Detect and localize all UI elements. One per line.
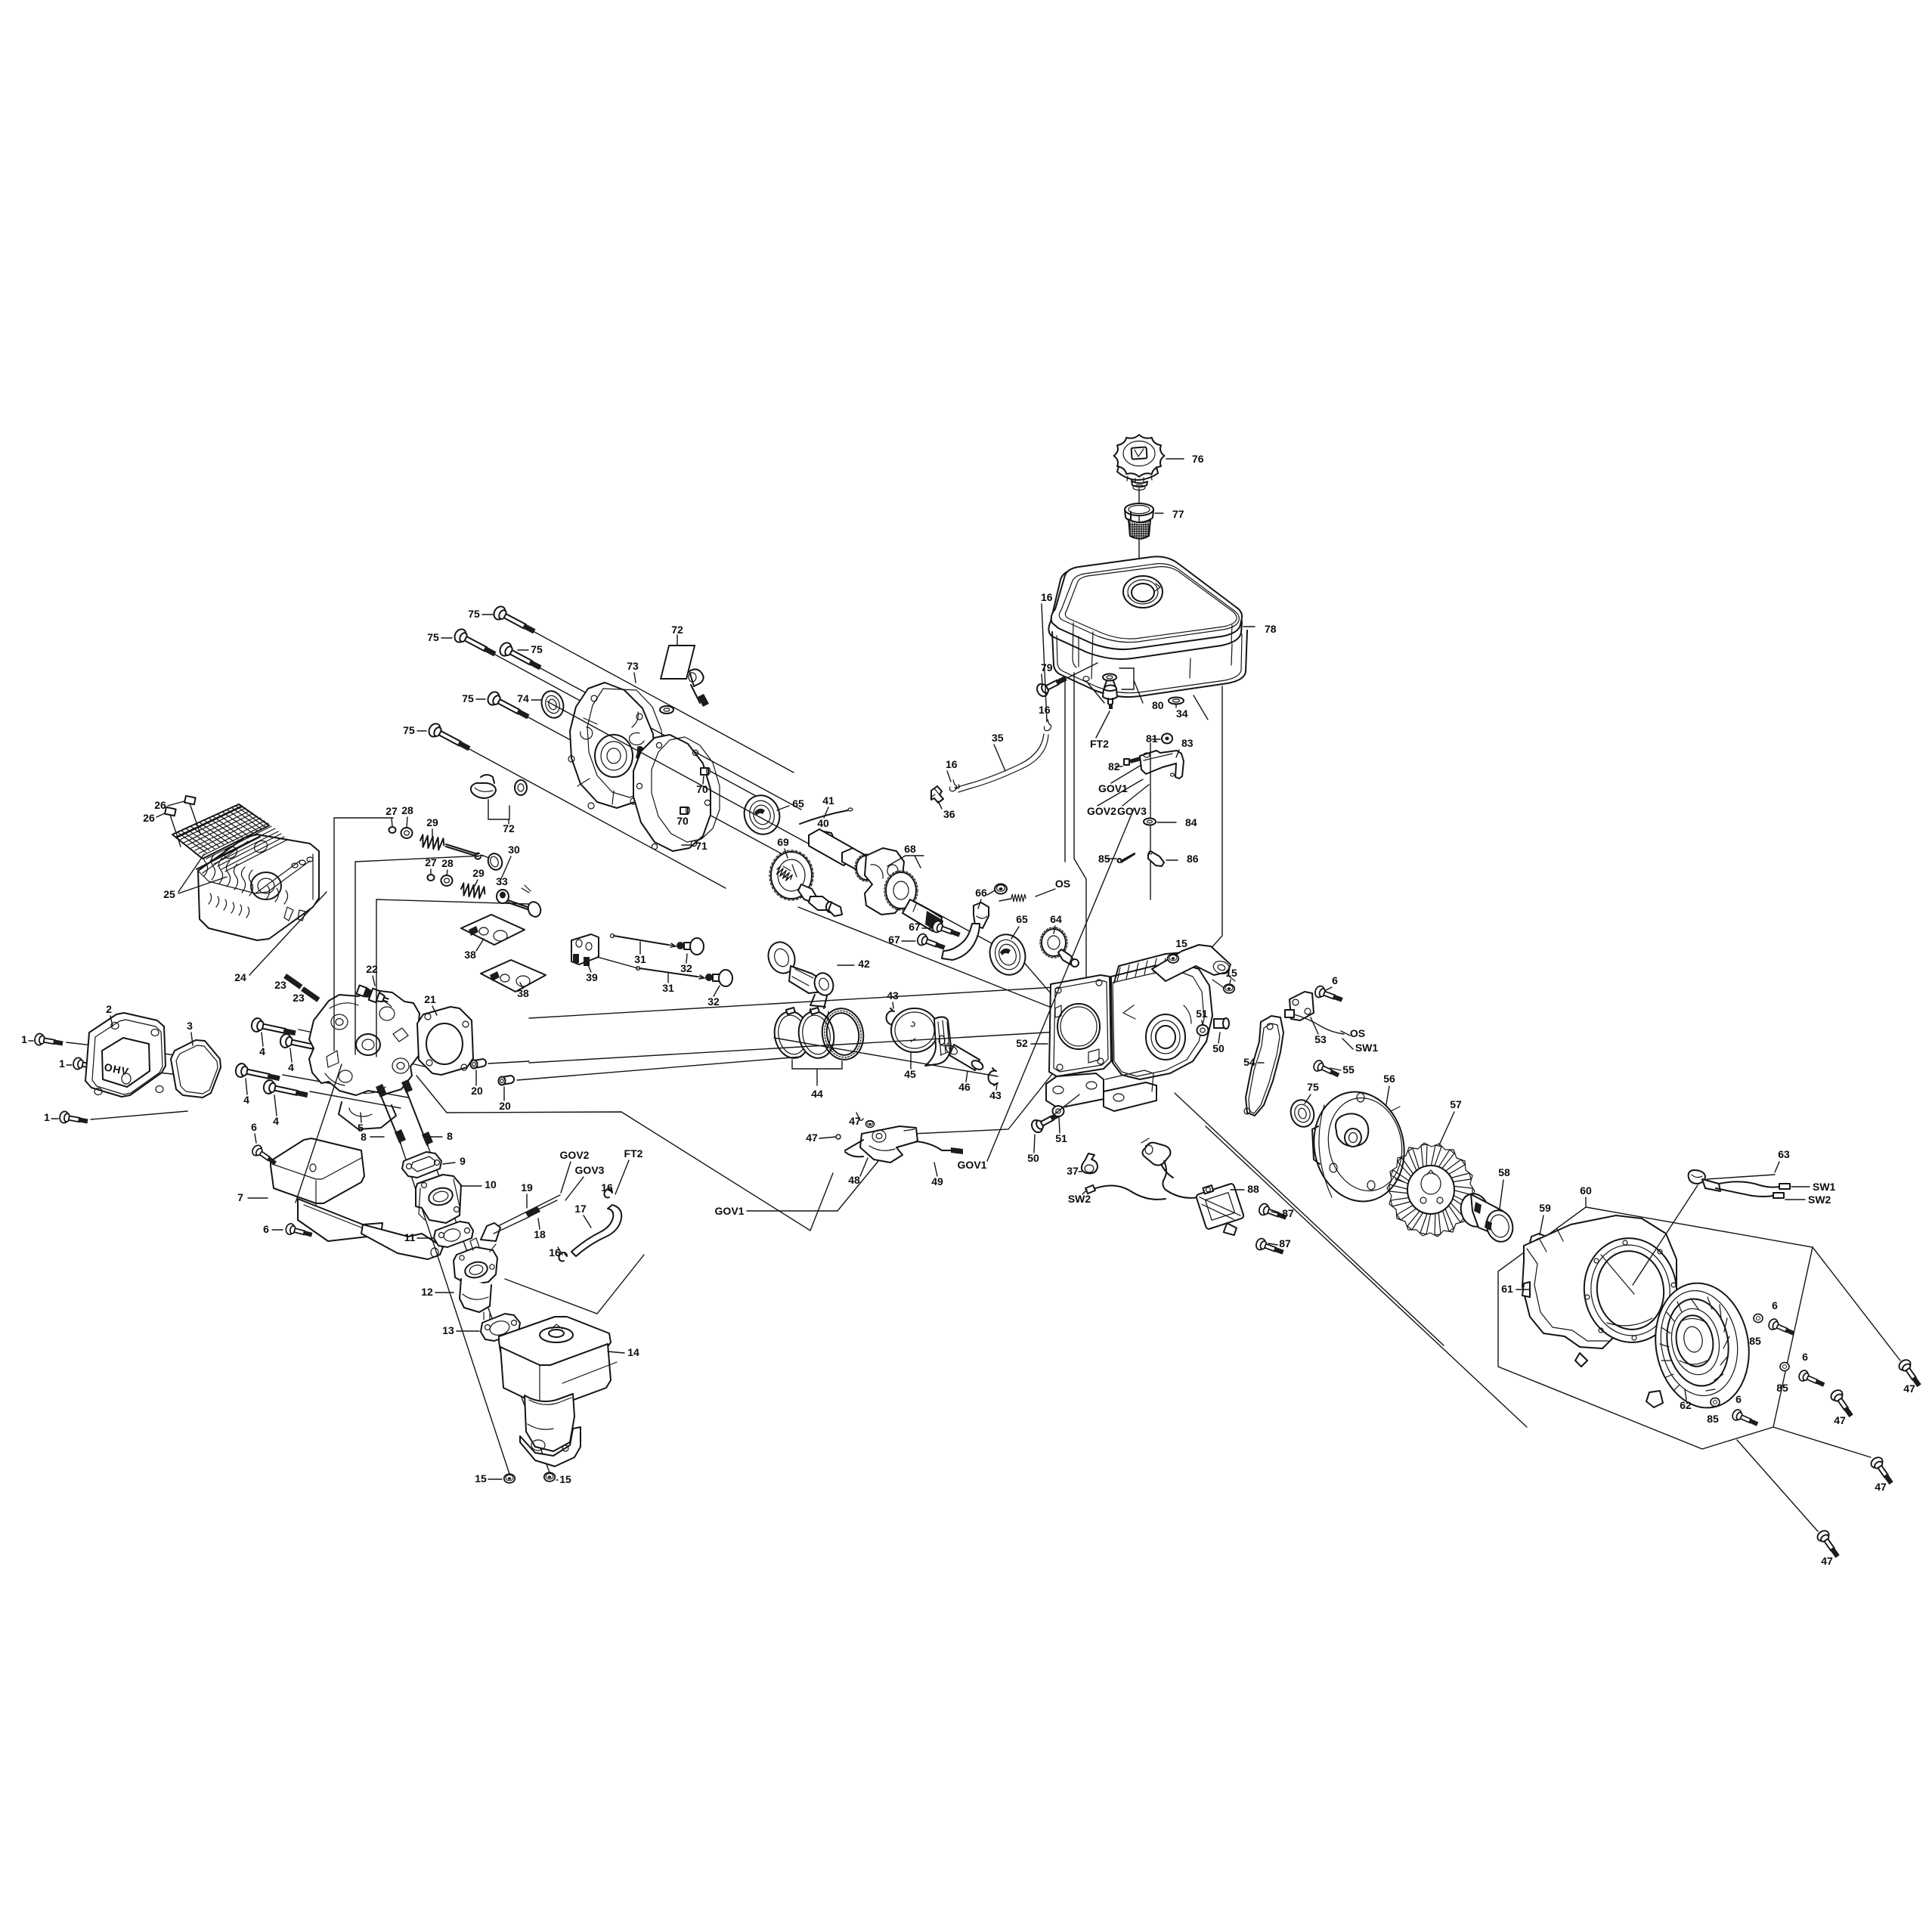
svg-text:32: 32 [707, 995, 720, 1008]
svg-text:16: 16 [1041, 591, 1053, 603]
svg-text:12: 12 [421, 1286, 433, 1298]
svg-text:15: 15 [1175, 937, 1187, 949]
svg-text:SW1: SW1 [1813, 1181, 1836, 1193]
svg-text:13: 13 [442, 1324, 454, 1336]
svg-text:GOV1: GOV1 [1098, 782, 1128, 794]
svg-text:FT2: FT2 [624, 1147, 643, 1160]
svg-text:47: 47 [1875, 1481, 1887, 1493]
svg-text:17: 17 [574, 1203, 587, 1215]
svg-text:72: 72 [671, 624, 683, 636]
svg-text:50: 50 [1212, 1042, 1225, 1054]
svg-text:51: 51 [1055, 1132, 1067, 1144]
svg-text:67: 67 [909, 921, 921, 933]
svg-text:SW2: SW2 [1808, 1194, 1831, 1206]
svg-text:70: 70 [696, 783, 708, 795]
svg-text:85: 85 [1749, 1335, 1761, 1347]
svg-text:49: 49 [931, 1175, 943, 1187]
svg-text:GOV1: GOV1 [715, 1205, 745, 1217]
svg-text:78: 78 [1265, 623, 1277, 635]
svg-text:11: 11 [404, 1231, 416, 1243]
svg-text:43: 43 [887, 989, 899, 1002]
svg-text:6: 6 [1802, 1351, 1808, 1363]
svg-text:84: 84 [1185, 816, 1197, 828]
svg-text:45: 45 [904, 1068, 916, 1080]
svg-text:OS: OS [1055, 878, 1070, 890]
svg-text:69: 69 [777, 836, 789, 848]
svg-text:81: 81 [1146, 732, 1158, 745]
svg-text:52: 52 [1016, 1037, 1028, 1049]
svg-text:80: 80 [1152, 699, 1164, 711]
svg-text:75: 75 [427, 631, 439, 643]
svg-text:41: 41 [822, 794, 834, 807]
svg-text:21: 21 [424, 993, 436, 1005]
svg-text:47: 47 [1821, 1555, 1833, 1567]
svg-text:28: 28 [441, 857, 454, 869]
svg-text:56: 56 [1383, 1073, 1395, 1085]
svg-text:GOV2: GOV2 [560, 1149, 590, 1161]
svg-text:47: 47 [1903, 1382, 1915, 1395]
svg-text:15: 15 [559, 1473, 571, 1485]
svg-text:7: 7 [237, 1191, 243, 1203]
svg-text:47: 47 [849, 1115, 861, 1127]
svg-text:36: 36 [943, 808, 955, 820]
svg-text:85: 85 [1707, 1413, 1719, 1425]
svg-text:20: 20 [499, 1100, 511, 1112]
svg-text:27: 27 [425, 856, 437, 868]
svg-text:6: 6 [263, 1223, 269, 1235]
svg-text:73: 73 [627, 660, 639, 672]
svg-text:FT2: FT2 [1090, 738, 1109, 750]
svg-text:83: 83 [1181, 737, 1194, 749]
svg-text:15: 15 [475, 1472, 487, 1485]
svg-text:24: 24 [234, 971, 246, 983]
svg-text:6: 6 [1332, 974, 1338, 986]
svg-text:33: 33 [496, 875, 508, 887]
svg-text:29: 29 [426, 816, 438, 828]
svg-text:72: 72 [503, 822, 515, 834]
svg-text:75: 75 [468, 608, 480, 620]
svg-text:74: 74 [517, 692, 529, 704]
svg-text:4: 4 [288, 1061, 294, 1073]
svg-text:75: 75 [462, 692, 474, 704]
svg-text:6: 6 [1735, 1393, 1742, 1405]
svg-text:1: 1 [21, 1033, 27, 1045]
svg-text:34: 34 [1176, 707, 1188, 720]
svg-text:25: 25 [163, 888, 175, 900]
svg-text:79: 79 [1041, 661, 1053, 673]
svg-text:48: 48 [848, 1174, 860, 1186]
svg-text:18: 18 [534, 1228, 546, 1240]
svg-text:57: 57 [1450, 1098, 1462, 1110]
svg-text:64: 64 [1050, 913, 1062, 925]
svg-text:68: 68 [904, 843, 916, 855]
svg-text:15: 15 [1225, 967, 1237, 979]
svg-text:32: 32 [680, 962, 692, 974]
svg-text:GOV3: GOV3 [1117, 805, 1147, 817]
svg-text:87: 87 [1279, 1237, 1291, 1249]
svg-text:37: 37 [1067, 1165, 1079, 1177]
svg-text:62: 62 [1680, 1399, 1692, 1411]
svg-text:50: 50 [1027, 1152, 1039, 1164]
svg-text:31: 31 [634, 953, 646, 965]
svg-text:87: 87 [1282, 1207, 1294, 1219]
svg-text:53: 53 [1314, 1033, 1327, 1045]
svg-text:60: 60 [1580, 1184, 1592, 1197]
svg-text:16: 16 [1039, 704, 1051, 716]
svg-text:43: 43 [989, 1089, 1002, 1101]
svg-text:59: 59 [1539, 1202, 1551, 1214]
svg-text:51: 51 [1196, 1008, 1208, 1020]
svg-text:28: 28 [401, 804, 413, 816]
svg-text:16: 16 [601, 1181, 613, 1194]
svg-text:2: 2 [106, 1003, 112, 1015]
svg-text:40: 40 [817, 817, 829, 829]
svg-text:4: 4 [243, 1094, 249, 1106]
svg-text:SW2: SW2 [1068, 1193, 1091, 1205]
svg-text:1: 1 [59, 1057, 65, 1070]
svg-text:58: 58 [1498, 1166, 1510, 1178]
svg-text:16: 16 [946, 758, 958, 770]
svg-text:GOV2: GOV2 [1087, 805, 1116, 817]
svg-text:6: 6 [251, 1121, 257, 1133]
svg-text:54: 54 [1243, 1056, 1255, 1068]
svg-text:66: 66 [975, 887, 987, 899]
svg-text:44: 44 [811, 1088, 823, 1100]
svg-text:8: 8 [361, 1131, 367, 1143]
svg-text:86: 86 [1187, 853, 1199, 865]
svg-text:85: 85 [1776, 1382, 1788, 1394]
svg-text:10: 10 [485, 1178, 497, 1190]
svg-text:19: 19 [521, 1181, 533, 1194]
svg-text:75: 75 [403, 724, 415, 736]
svg-text:76: 76 [1192, 453, 1204, 465]
svg-text:SW1: SW1 [1355, 1042, 1379, 1054]
svg-text:47: 47 [806, 1132, 818, 1144]
svg-text:61: 61 [1501, 1283, 1513, 1295]
svg-text:20: 20 [471, 1085, 483, 1097]
svg-text:35: 35 [992, 732, 1004, 744]
svg-text:4: 4 [273, 1115, 279, 1127]
svg-text:70: 70 [677, 815, 689, 827]
svg-text:GOV1: GOV1 [958, 1159, 987, 1171]
svg-text:31: 31 [662, 982, 674, 994]
svg-text:67: 67 [888, 933, 900, 946]
svg-text:1: 1 [44, 1111, 50, 1123]
svg-text:8: 8 [447, 1130, 453, 1142]
svg-text:23: 23 [274, 979, 286, 991]
svg-text:14: 14 [627, 1346, 639, 1358]
svg-text:75: 75 [1307, 1081, 1319, 1093]
svg-text:39: 39 [586, 971, 598, 983]
svg-text:65: 65 [792, 797, 804, 810]
svg-text:27: 27 [385, 805, 398, 817]
svg-text:63: 63 [1778, 1148, 1790, 1160]
svg-text:65: 65 [1016, 913, 1028, 925]
svg-text:9: 9 [460, 1155, 466, 1167]
svg-text:71: 71 [695, 840, 707, 852]
svg-text:55: 55 [1342, 1064, 1355, 1076]
svg-text:26: 26 [154, 799, 166, 811]
svg-text:23: 23 [293, 992, 305, 1004]
svg-text:GOV3: GOV3 [575, 1164, 605, 1176]
svg-text:OS: OS [1350, 1027, 1365, 1039]
svg-text:46: 46 [958, 1081, 971, 1093]
svg-text:29: 29 [472, 867, 485, 879]
svg-text:4: 4 [259, 1045, 265, 1057]
svg-text:77: 77 [1172, 508, 1184, 520]
svg-text:75: 75 [531, 643, 543, 655]
svg-text:38: 38 [464, 949, 476, 961]
svg-text:47: 47 [1834, 1414, 1846, 1426]
svg-text:3: 3 [187, 1020, 193, 1032]
svg-text:88: 88 [1247, 1183, 1259, 1195]
svg-text:30: 30 [508, 844, 520, 856]
svg-text:6: 6 [1772, 1299, 1778, 1311]
svg-text:26: 26 [143, 812, 155, 824]
svg-text:42: 42 [858, 958, 870, 970]
